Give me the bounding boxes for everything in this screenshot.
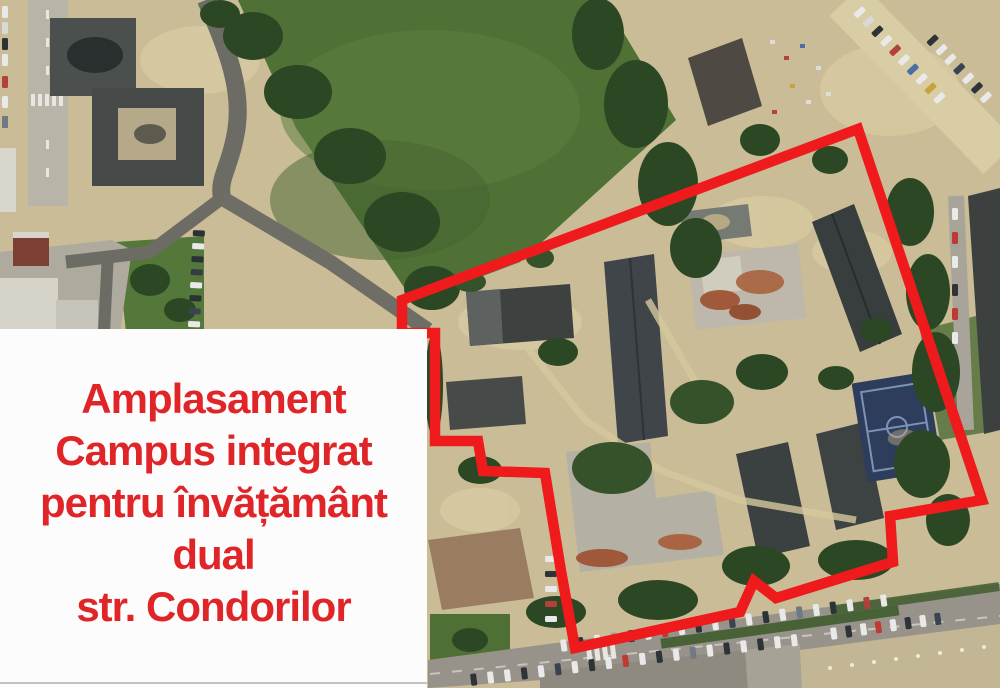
screenshot-root: Amplasament Campus integrat pentru învăț… xyxy=(0,0,1000,688)
site-label-line-5: str. Condorilor xyxy=(76,581,350,633)
label-box-bottom-rule xyxy=(0,682,427,684)
site-label-line-4: dual xyxy=(172,529,254,581)
site-label-line-2: Campus integrat xyxy=(55,425,371,477)
tan-roof-building xyxy=(428,528,534,610)
site-label-line-1: Amplasament xyxy=(81,373,345,425)
site-label-box: Amplasament Campus integrat pentru învăț… xyxy=(0,329,427,688)
site-label-line-3: pentru învățământ xyxy=(40,477,387,529)
